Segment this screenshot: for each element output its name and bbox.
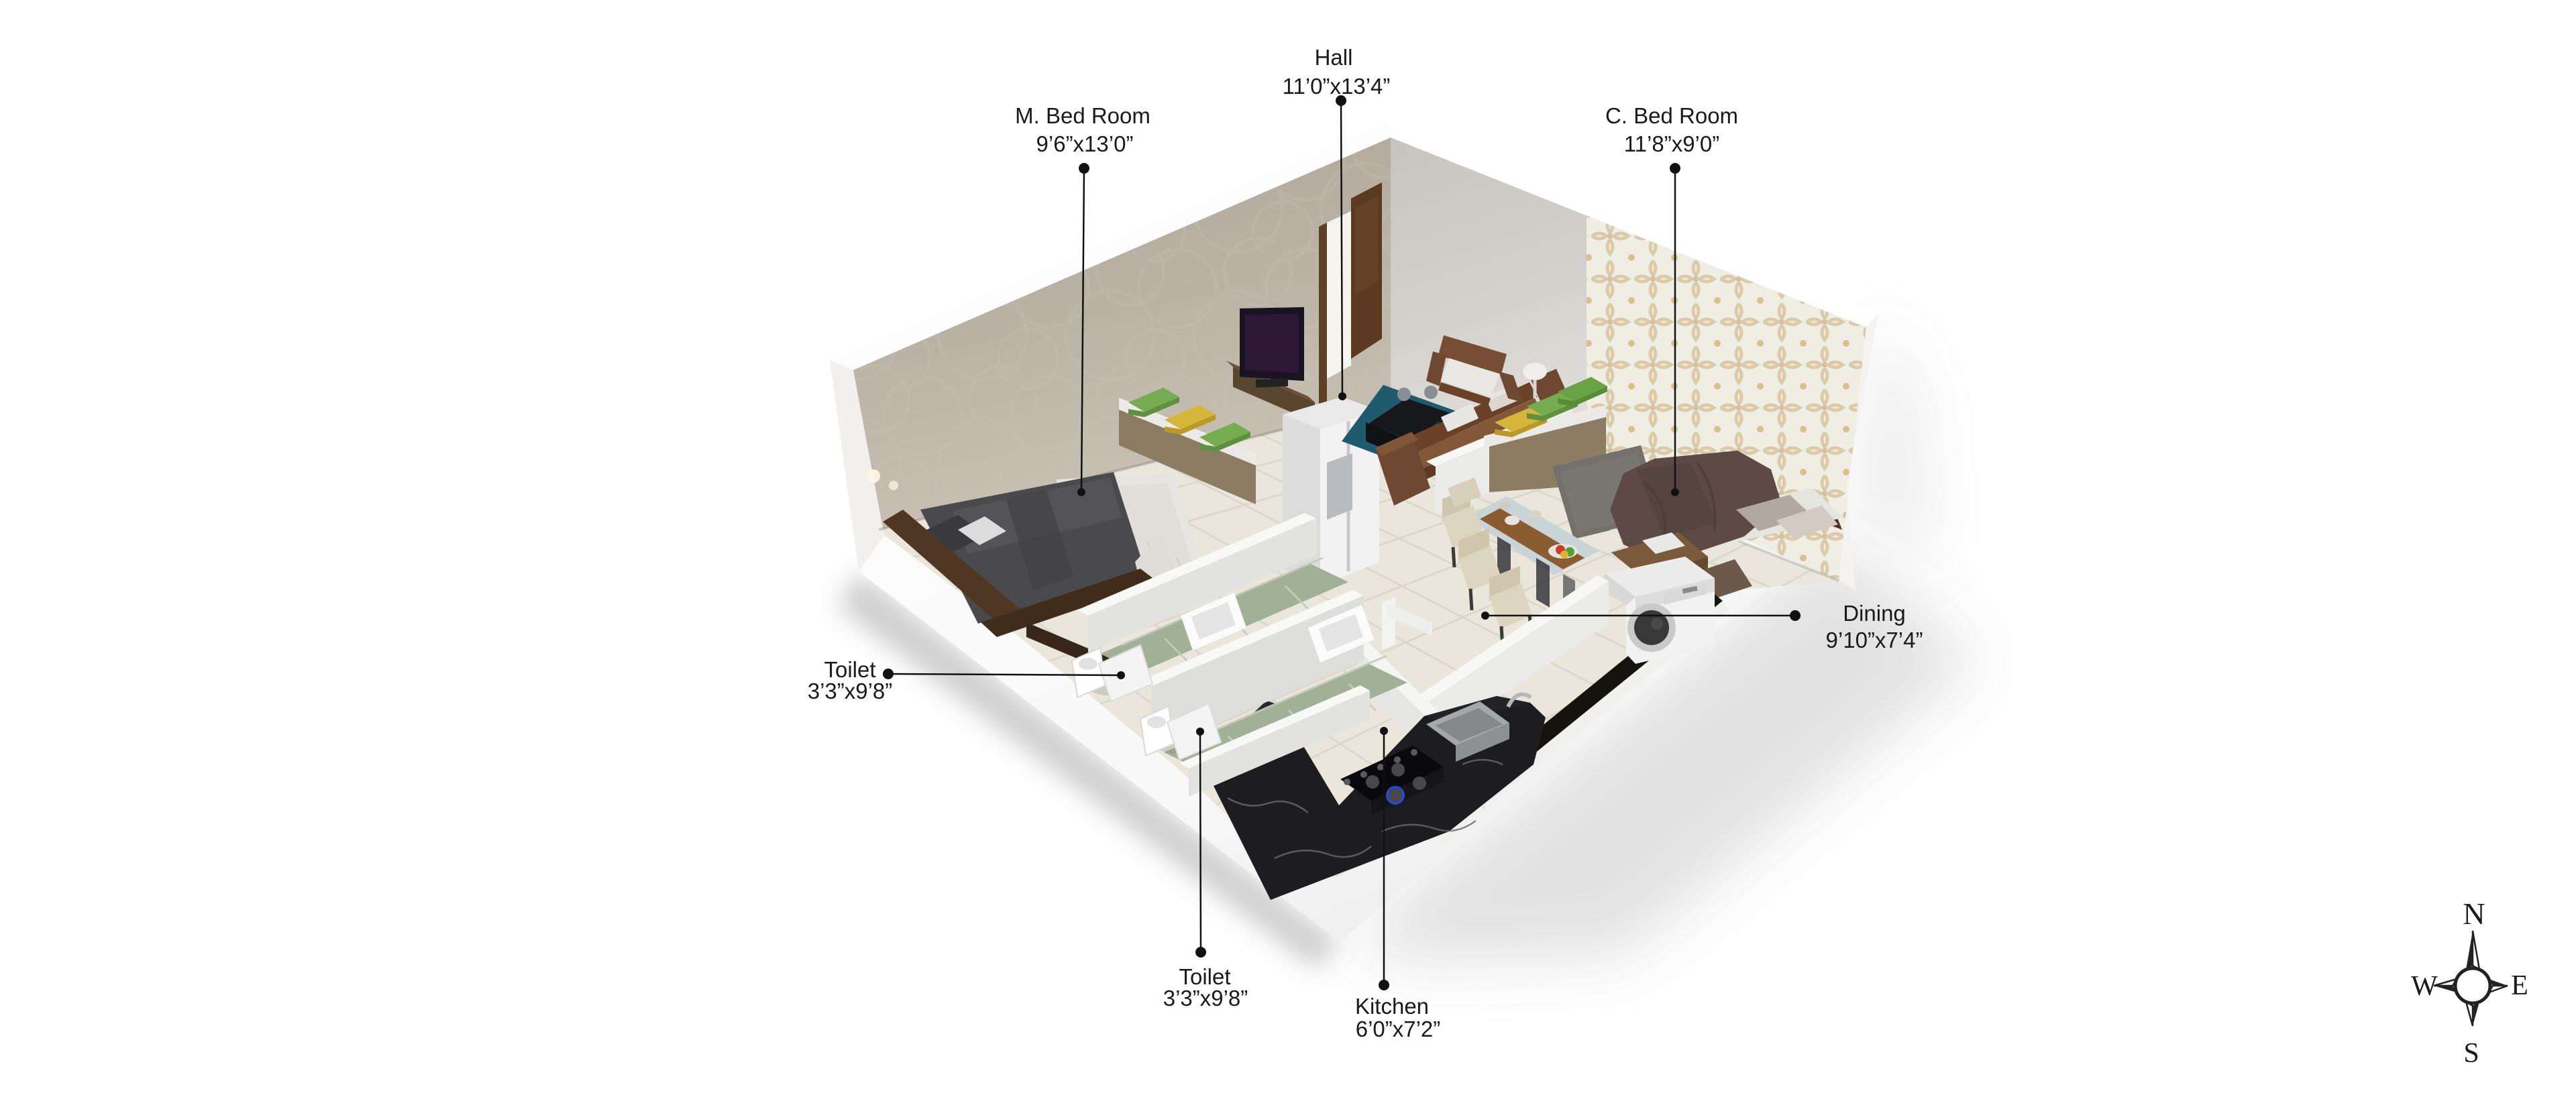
svg-text:C. Bed Room: C. Bed Room	[1605, 103, 1738, 128]
svg-text:6’0”x7’2”: 6’0”x7’2”	[1356, 1017, 1441, 1041]
svg-text:3’3”x9’8”: 3’3”x9’8”	[808, 679, 893, 703]
svg-text:11’8”x9’0”: 11’8”x9’0”	[1624, 131, 1719, 156]
svg-text:9’6”x13’0”: 9’6”x13’0”	[1036, 131, 1134, 156]
svg-text:3’3”x9’8”: 3’3”x9’8”	[1163, 986, 1248, 1011]
svg-text:W: W	[2411, 971, 2438, 1002]
svg-text:9’10”x7’4”: 9’10”x7’4”	[1826, 628, 1923, 652]
svg-text:E: E	[2511, 970, 2528, 1001]
svg-text:11’0”x13’4”: 11’0”x13’4”	[1283, 74, 1391, 99]
svg-text:S: S	[2463, 1038, 2479, 1069]
svg-text:N: N	[2463, 897, 2485, 931]
svg-text:Hall: Hall	[1315, 45, 1353, 70]
svg-text:Dining: Dining	[1843, 601, 1906, 626]
svg-text:M. Bed Room: M. Bed Room	[1015, 103, 1150, 128]
svg-text:Kitchen: Kitchen	[1355, 994, 1429, 1019]
